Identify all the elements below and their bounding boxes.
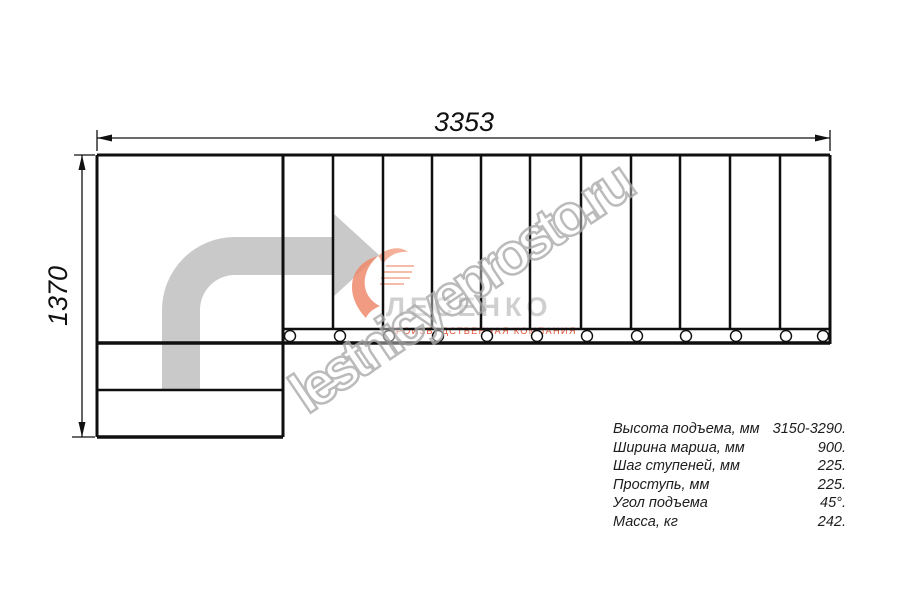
- spec-label: Высота подъема, мм: [613, 420, 760, 439]
- spec-value: 900.: [818, 439, 846, 458]
- spec-value: 45°.: [820, 494, 846, 513]
- spec-label: Шаг ступеней, мм: [613, 457, 740, 476]
- spec-label: Масса, кг: [613, 513, 678, 532]
- spec-value: 225.: [818, 476, 846, 495]
- width-dimension-label: 3353: [434, 107, 494, 137]
- spec-row-flight-width: Ширина марша, мм 900.: [613, 439, 846, 458]
- spec-table: Высота подъема, мм 3150-3290. Ширина мар…: [613, 420, 846, 532]
- height-arrow-top: [79, 155, 86, 170]
- height-arrow-bottom: [79, 422, 86, 437]
- stair-plan-drawing: ЛЕСЕНКО ПРОИЗВОДСТВЕННАЯ КОМПАНИЯ: [0, 0, 900, 600]
- spec-row-step-pitch: Шаг ступеней, мм 225.: [613, 457, 846, 476]
- spec-row-mass: Масса, кг 242.: [613, 513, 846, 532]
- spec-value: 242.: [818, 513, 846, 532]
- height-dimension: [72, 155, 95, 437]
- height-extension-lines: [72, 155, 95, 437]
- baluster-circles: [285, 331, 829, 342]
- spec-row-tread: Проступь, мм 225.: [613, 476, 846, 495]
- spec-label: Проступь, мм: [613, 476, 709, 495]
- spec-label: Ширина марша, мм: [613, 439, 745, 458]
- spec-row-height: Высота подъема, мм 3150-3290.: [613, 420, 846, 439]
- width-arrow-right: [815, 135, 830, 142]
- height-dimension-label: 1370: [43, 266, 73, 326]
- spec-value: 3150-3290.: [773, 420, 846, 439]
- spec-value: 225.: [818, 457, 846, 476]
- spec-label: Угол подъема: [613, 494, 708, 513]
- spec-row-angle: Угол подъема 45°.: [613, 494, 846, 513]
- width-arrow-left: [97, 135, 112, 142]
- step-dividers: [333, 155, 780, 329]
